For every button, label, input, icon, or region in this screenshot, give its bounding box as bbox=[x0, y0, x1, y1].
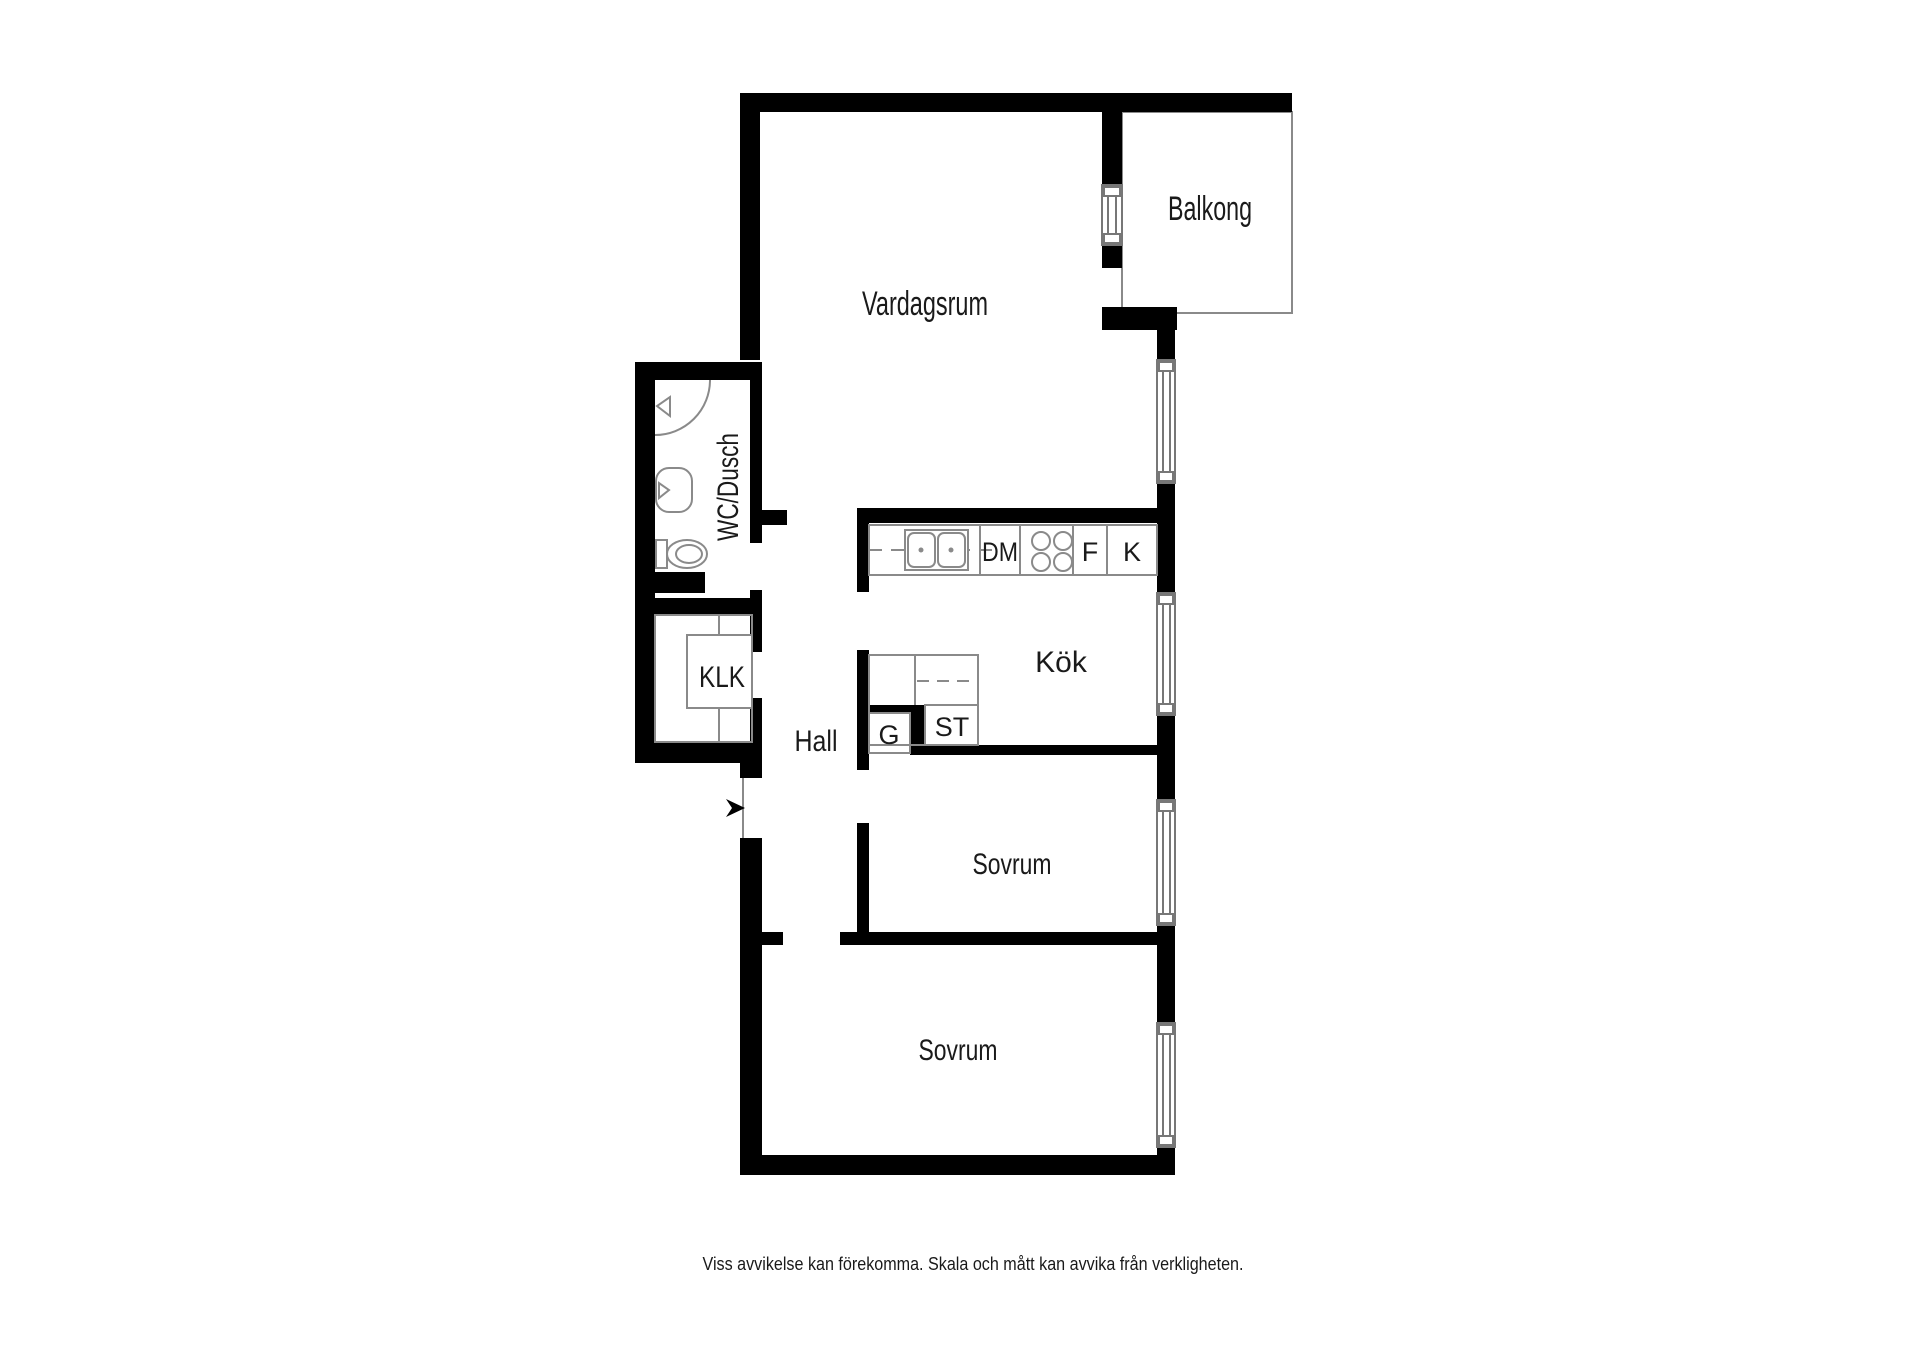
fixture-label-f: F bbox=[1082, 537, 1099, 567]
room-label-klk: KLK bbox=[699, 661, 745, 694]
floor-plan-page: Vardagsrum Balkong WC/Dusch Kök KLK Hall… bbox=[0, 0, 1920, 1357]
window-icon-kok bbox=[1157, 593, 1175, 715]
toilet-icon bbox=[656, 540, 707, 568]
room-label-sovrum-2: Sovrum bbox=[919, 1034, 998, 1067]
bathroom-sink-icon bbox=[656, 468, 692, 512]
fixture-label-g: G bbox=[878, 720, 899, 750]
fixture-label-dm: DM bbox=[982, 537, 1018, 567]
window-icon-vardagsrum bbox=[1157, 360, 1175, 483]
floor-plan: Vardagsrum Balkong WC/Dusch Kök KLK Hall… bbox=[0, 0, 1920, 1357]
room-label-kok: Kök bbox=[1035, 646, 1088, 679]
room-label-vardagsrum: Vardagsrum bbox=[862, 285, 988, 323]
kitchen-sink-icon bbox=[905, 530, 968, 570]
fixture-label-k: K bbox=[1123, 537, 1141, 567]
disclaimer-text: Viss avvikelse kan förekomma. Skala och … bbox=[703, 1254, 1244, 1274]
window-icon-balkong bbox=[1102, 185, 1122, 245]
room-label-hall: Hall bbox=[795, 725, 838, 758]
plan-background bbox=[0, 0, 1920, 1357]
fixture-label-st: ST bbox=[935, 712, 970, 742]
room-label-balkong: Balkong bbox=[1168, 190, 1252, 228]
room-label-sovrum-1: Sovrum bbox=[973, 848, 1052, 881]
window-icon-sovrum-1 bbox=[1157, 800, 1175, 925]
room-label-wc-dusch: WC/Dusch bbox=[712, 433, 745, 541]
window-icon-sovrum-2 bbox=[1157, 1023, 1175, 1147]
